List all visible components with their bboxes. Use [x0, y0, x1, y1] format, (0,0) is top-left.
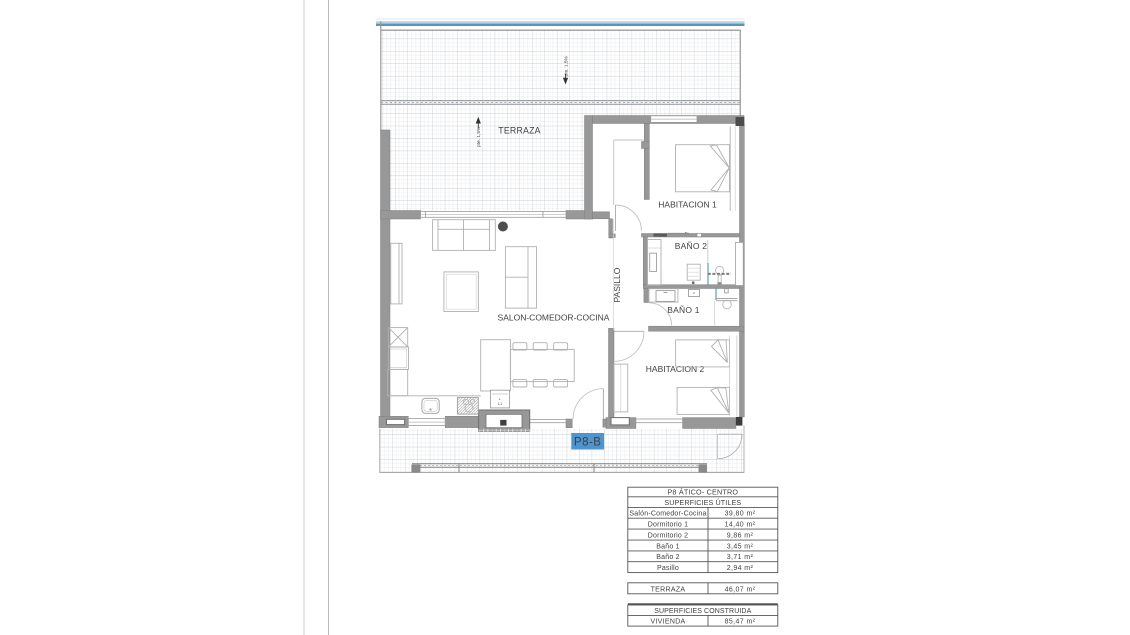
svg-text:TERRAZA: TERRAZA: [651, 586, 686, 593]
svg-text:HABITACION 1: HABITACION 1: [658, 200, 717, 210]
svg-text:SALON-COMEDOR-COCINA: SALON-COMEDOR-COCINA: [498, 313, 610, 323]
svg-text:Baño 2: Baño 2: [656, 554, 679, 561]
svg-text:VIVIENDA: VIVIENDA: [650, 619, 685, 626]
svg-text:SUPERFICIES ÚTILES: SUPERFICIES ÚTILES: [664, 498, 741, 507]
svg-text:46,07 m²: 46,07 m²: [725, 586, 756, 593]
svg-text:85,47 m²: 85,47 m²: [725, 619, 756, 626]
svg-text:3,45 m²: 3,45 m²: [727, 543, 754, 550]
svg-text:1,1: 1,1: [497, 402, 502, 406]
svg-text:Salón-Comedor-Cocina: Salón-Comedor-Cocina: [629, 511, 706, 518]
svg-text:39,80 m²: 39,80 m²: [725, 511, 756, 518]
svg-text:BAÑO 2: BAÑO 2: [675, 241, 707, 251]
svg-text:Dormitorio 2: Dormitorio 2: [648, 532, 689, 539]
svg-text:9,86 m²: 9,86 m²: [727, 532, 754, 539]
svg-text:Pasillo: Pasillo: [657, 565, 679, 572]
svg-text:pte. 1,5%: pte. 1,5%: [476, 126, 482, 147]
svg-text:+: +: [499, 398, 501, 402]
svg-text:pte. 1,5%: pte. 1,5%: [563, 55, 569, 76]
svg-text:Baño 1: Baño 1: [656, 543, 679, 550]
svg-text:2,94 m²: 2,94 m²: [727, 565, 754, 572]
svg-text:TERRAZA: TERRAZA: [498, 125, 540, 135]
svg-text:P8-B: P8-B: [574, 437, 602, 449]
svg-text:P8 ÁTICO- CENTRO: P8 ÁTICO- CENTRO: [667, 488, 738, 497]
svg-text:BAÑO 1: BAÑO 1: [667, 305, 699, 315]
svg-text:3,71 m²: 3,71 m²: [727, 554, 754, 561]
svg-text:Dormitorio 1: Dormitorio 1: [648, 522, 689, 529]
svg-text:14,40 m²: 14,40 m²: [725, 522, 756, 529]
svg-text:SUPERFICIES CONSTRUIDA: SUPERFICIES CONSTRUIDA: [654, 608, 751, 615]
svg-text:HABITACION 2: HABITACION 2: [646, 364, 705, 374]
